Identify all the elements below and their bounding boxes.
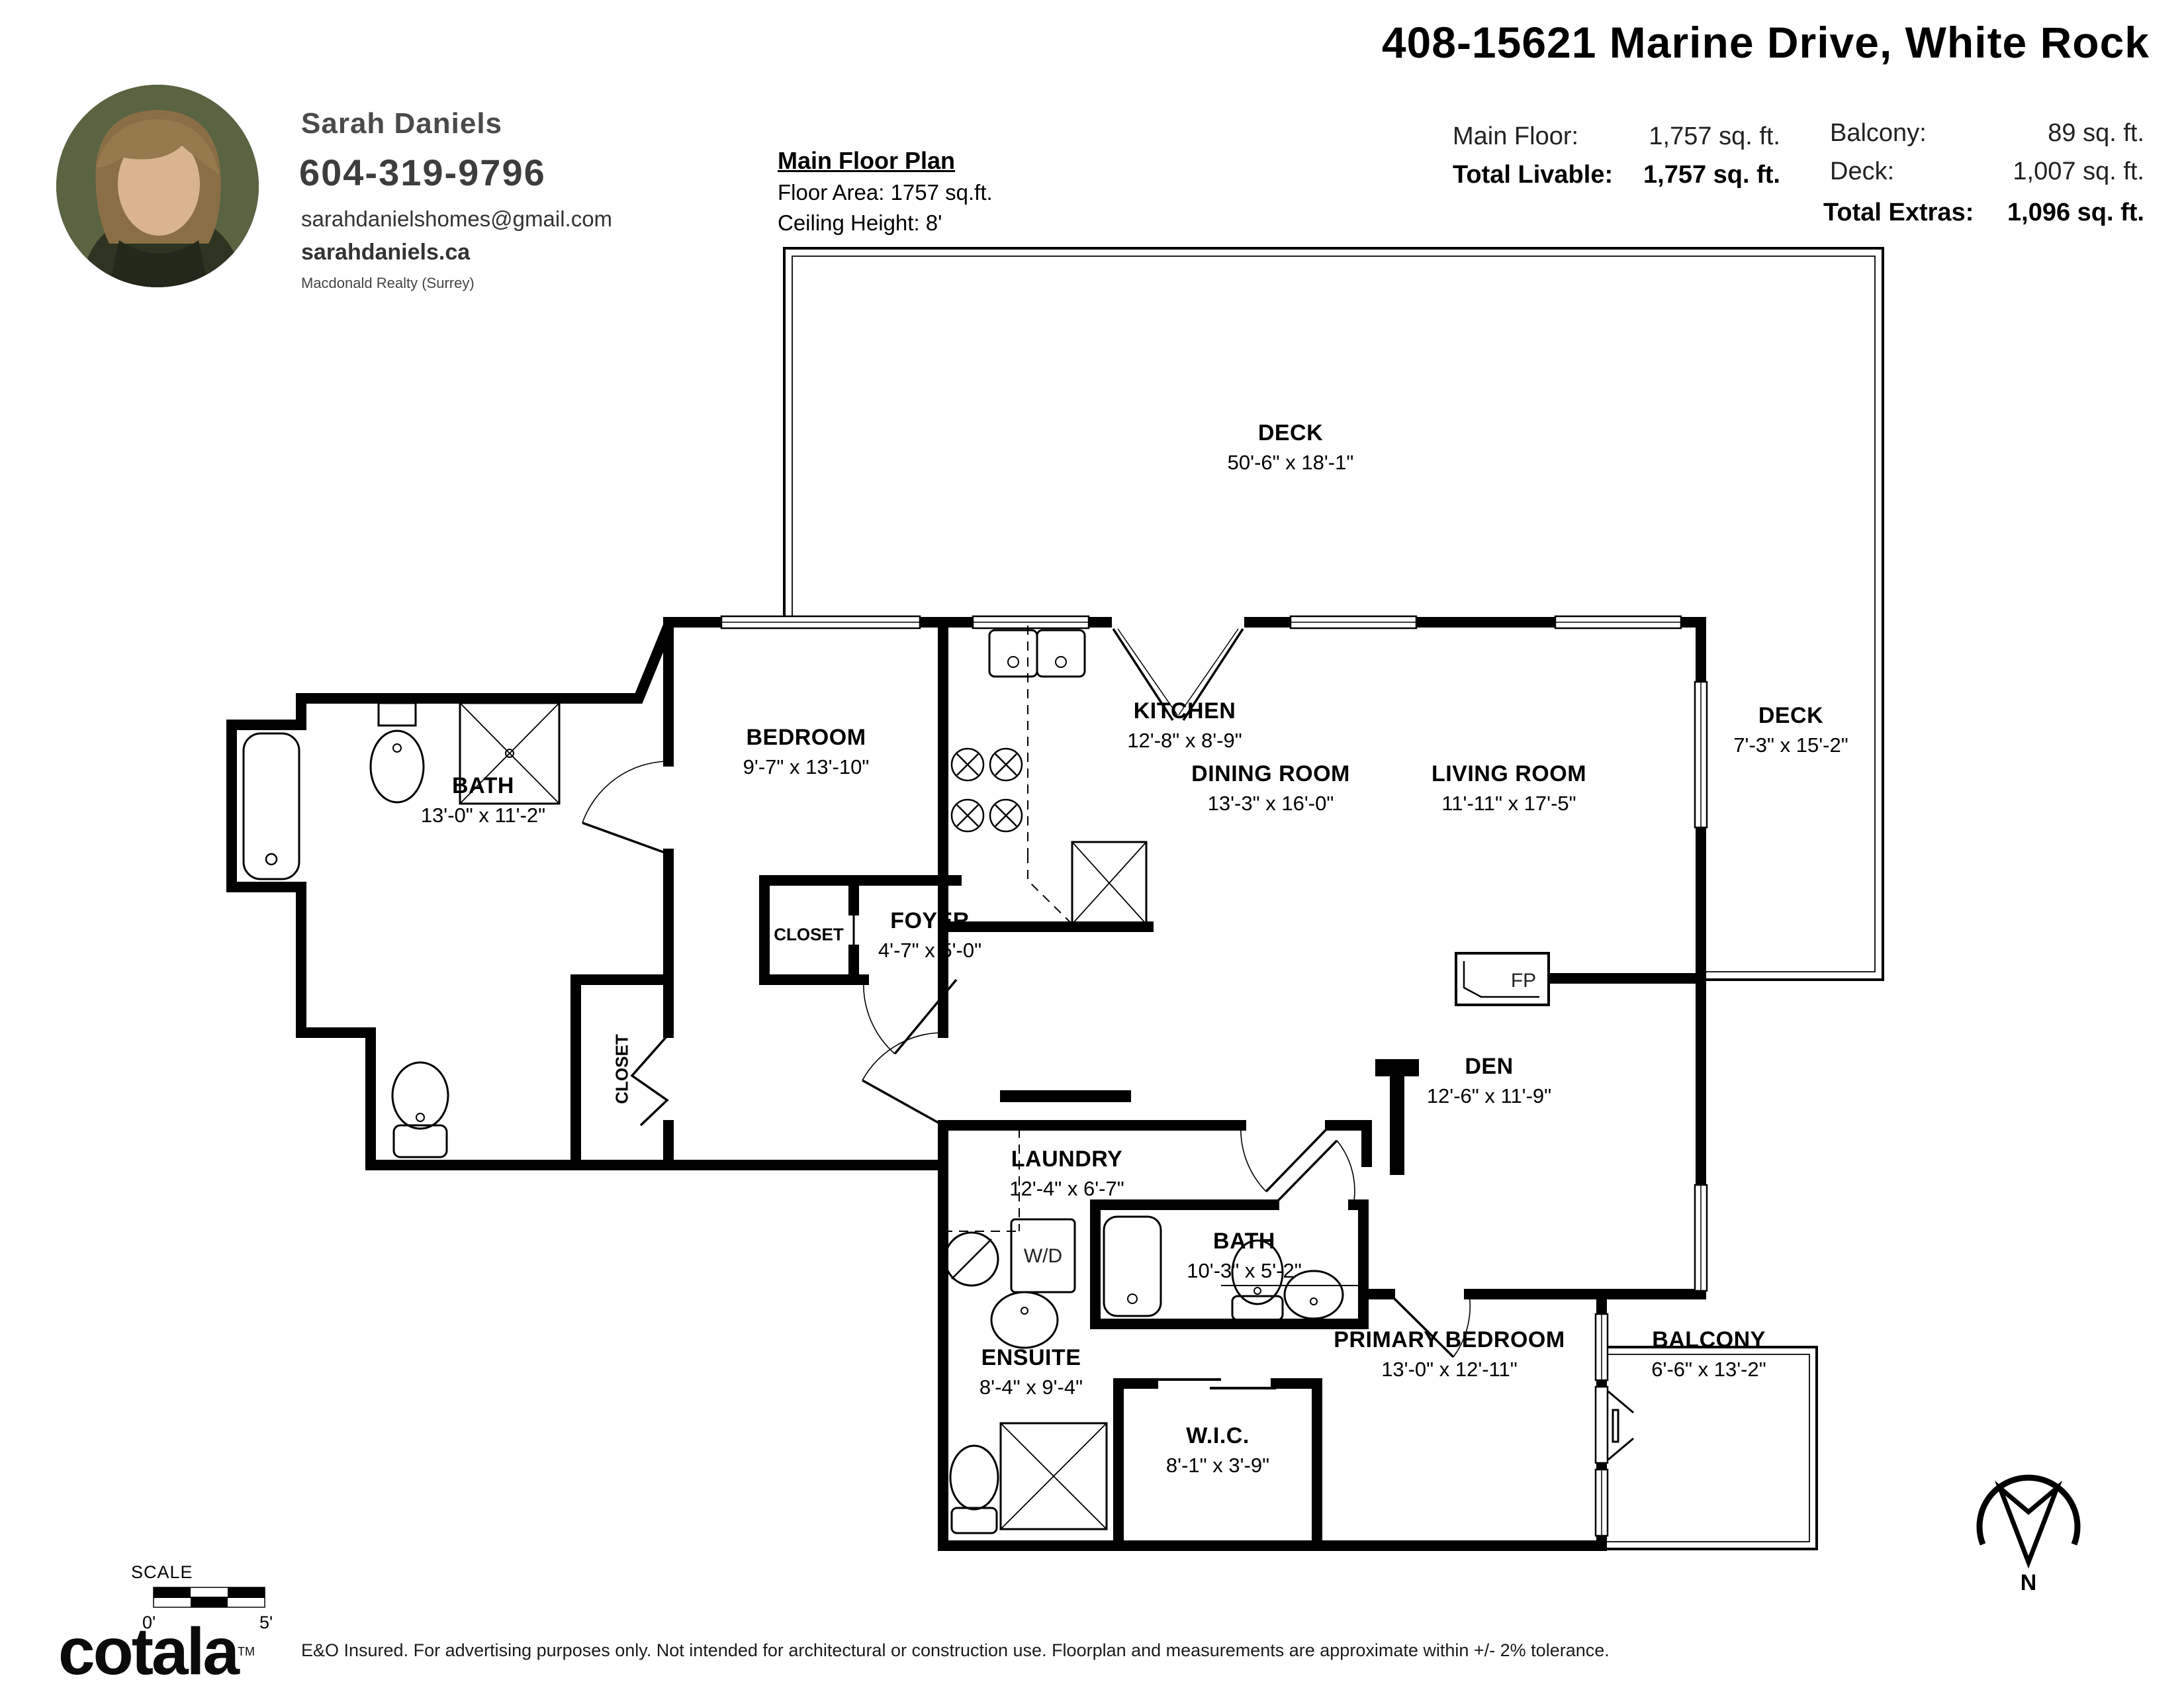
hall-pillar	[1375, 1059, 1419, 1175]
laundry-closet-dashed	[943, 1129, 1019, 1231]
room-label-bath2: BATH10'-3" x 5'-2"	[1187, 1229, 1301, 1283]
agent-photo	[56, 85, 259, 287]
stat-balcony-value: 89 sq. ft.	[1985, 119, 2144, 148]
toilet-icon	[392, 1062, 448, 1157]
balcony-slider	[1596, 1387, 1608, 1463]
stat-total-extras-value: 1,096 sq. ft.	[1982, 199, 2144, 227]
stove-icon	[952, 749, 1022, 831]
ensuite-sink-icon	[991, 1292, 1058, 1348]
stat-deck-value: 1,007 sq. ft.	[1985, 158, 2144, 186]
tub-icon	[244, 733, 299, 879]
cotala-logo: cotalaTM	[58, 1614, 255, 1688]
windows	[721, 616, 1707, 1536]
closet-label-foyer: CLOSET	[774, 925, 843, 945]
plan-ceiling-height: Ceiling Height: 8'	[778, 211, 942, 236]
agent-email: sarahdanielshomes@gmail.com	[301, 207, 612, 232]
logo-tm: TM	[238, 1645, 255, 1658]
room-label-primary: PRIMARY BEDROOM13'-0" x 12'-11"	[1334, 1327, 1565, 1382]
agent-website: sarahdaniels.ca	[301, 240, 470, 265]
ensuite-shower-icon	[1001, 1423, 1107, 1529]
washer-dryer-label: W/D	[1024, 1245, 1062, 1268]
laundry-top-wall	[943, 1125, 1367, 1162]
room-label-den: DEN12'-6" x 11'-9"	[1427, 1054, 1551, 1108]
stat-total-extras-label: Total Extras:	[1823, 199, 1974, 227]
bifold-door	[632, 1036, 667, 1125]
ensuite-toilet-icon	[950, 1446, 998, 1533]
scale-end: 5'	[259, 1613, 273, 1633]
page-title-address: 408-15621 Marine Drive, White Rock	[1125, 17, 2150, 68]
north-label: N	[2021, 1570, 2037, 1596]
scale-bar	[154, 1587, 265, 1607]
stat-total-livable-label: Total Livable:	[1453, 161, 1613, 189]
stat-balcony-label: Balcony:	[1830, 119, 1927, 148]
scale-label: SCALE	[131, 1562, 193, 1583]
stat-main-floor-label: Main Floor:	[1453, 122, 1578, 151]
room-label-dining: DINING ROOM13'-3" x 16'-0"	[1191, 761, 1350, 816]
plan-floor-area: Floor Area: 1757 sq.ft.	[778, 180, 993, 205]
room-label-bedroom: BEDROOM9'-7" x 13'-10"	[743, 725, 870, 779]
stat-main-floor-value: 1,757 sq. ft.	[1615, 122, 1780, 151]
agent-brokerage: Macdonald Realty (Surrey)	[301, 275, 475, 292]
room-label-living: LIVING ROOM11'-11" x 17'-5"	[1432, 761, 1586, 816]
floorplan-page: Sarah Daniels 604-319-9796 sarahdanielsh…	[0, 0, 2184, 1688]
stat-total-livable-value: 1,757 sq. ft.	[1615, 161, 1780, 189]
balcony-slider-leaves	[1608, 1391, 1633, 1460]
room-label-kitchen: KITCHEN12'-8" x 8'-9"	[1127, 698, 1242, 753]
doors	[582, 761, 1470, 1388]
fixtures	[244, 626, 1549, 1533]
agent-name: Sarah Daniels	[301, 107, 502, 140]
wic-slider	[1153, 1380, 1276, 1388]
room-label-foyer: FOYER4'-7" x 5'-0"	[878, 908, 981, 962]
stat-deck-label: Deck:	[1830, 158, 1894, 186]
laundry-sink-icon	[945, 1233, 998, 1286]
room-label-bath: BATH13'-0" x 11'-2"	[421, 773, 545, 827]
room-label-balcony: BALCONY6'-6" x 13'-2"	[1651, 1327, 1766, 1382]
sink-icon	[371, 703, 424, 802]
north-compass-icon	[1979, 1477, 2077, 1562]
fireplace-label: FP	[1511, 970, 1536, 992]
fridge-icon	[1072, 842, 1146, 924]
bath2-tub-icon	[1104, 1217, 1161, 1316]
room-label-laundry: LAUNDRY12'-4" x 6'-7"	[1009, 1147, 1124, 1201]
room-label-deck-top: DECK50'-6" x 18'-1"	[1228, 420, 1354, 475]
room-label-ensuite: ENSUITE8'-4" x 9'-4"	[979, 1345, 1083, 1399]
agent-portrait-graphic	[56, 85, 259, 287]
room-label-wic: W.I.C.8'-1" x 3'-9"	[1166, 1423, 1269, 1477]
kitchen-sink-icon	[989, 630, 1085, 677]
counter-dashed	[1028, 626, 1073, 925]
disclaimer-text: E&O Insured. For advertising purposes on…	[301, 1640, 1610, 1661]
closet-label-bedroom: CLOSET	[612, 1034, 633, 1103]
plan-title: Main Floor Plan	[778, 147, 955, 175]
room-label-deck-right: DECK7'-3" x 15'-2"	[1733, 703, 1848, 757]
agent-phone: 604-319-9796	[299, 151, 546, 194]
